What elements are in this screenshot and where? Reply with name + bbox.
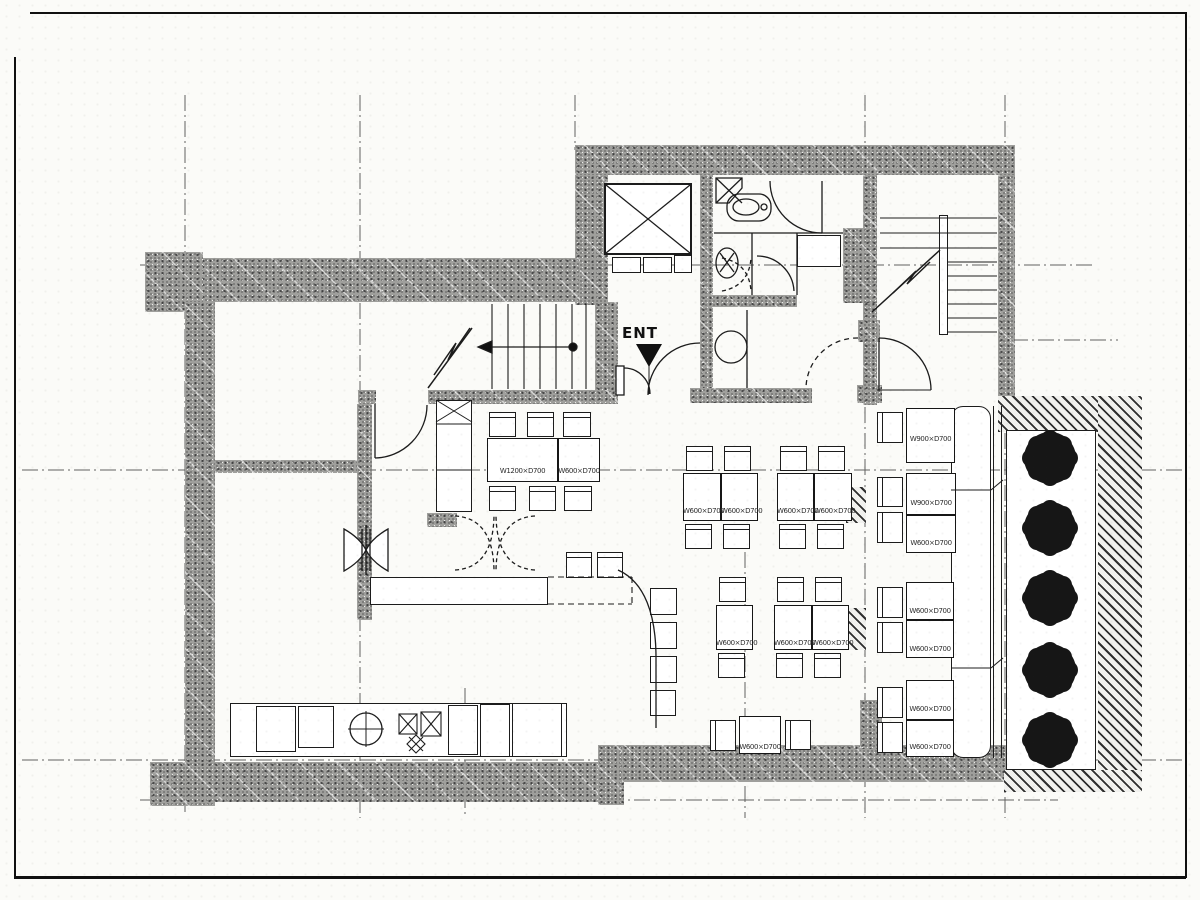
stair-stringer <box>939 215 948 335</box>
chair <box>723 524 750 549</box>
table-size-label: W600×D700 <box>683 508 721 515</box>
table-size-label: W600×D700 <box>812 640 849 647</box>
chair <box>686 446 713 471</box>
corner-sink-icon <box>716 178 742 203</box>
column-circle <box>715 331 747 363</box>
chair <box>877 622 903 653</box>
chair <box>529 486 556 511</box>
chair <box>877 477 903 507</box>
table <box>487 438 558 482</box>
table-size-label: W1200×D700 <box>487 468 558 475</box>
door-arc-left-room <box>375 404 427 458</box>
page-border-right <box>1185 12 1187 878</box>
chair <box>877 412 903 443</box>
table-size-label: W900×D700 <box>906 436 955 443</box>
wall-toilet-stair-block <box>843 228 877 303</box>
planter-wall-bottom <box>1004 770 1142 792</box>
stair-break-symbol <box>872 250 940 312</box>
table-size-label: W600×D700 <box>558 468 600 475</box>
chair <box>566 552 592 578</box>
door-arc-stair <box>877 338 931 390</box>
table <box>906 473 956 515</box>
chair <box>877 722 903 753</box>
stair-break-symbol-left <box>428 328 472 388</box>
chair <box>877 587 903 618</box>
table <box>906 680 954 720</box>
elevator-door-left <box>612 257 641 273</box>
chair <box>724 446 751 471</box>
chair <box>710 720 736 751</box>
stool <box>650 656 677 683</box>
chair <box>489 412 516 437</box>
chair <box>877 687 903 718</box>
wall-left-rooms-partition <box>215 460 360 473</box>
wall-left-outer <box>185 302 215 764</box>
service-cabinet <box>436 400 472 512</box>
table-size-label: W600×D700 <box>774 640 812 647</box>
planter-wall-right <box>1098 396 1142 792</box>
kitchen-unit-4 <box>480 704 510 757</box>
chair <box>564 486 592 511</box>
urinal-icon <box>716 248 738 278</box>
chair <box>785 720 811 750</box>
entrance-label: ENT <box>616 324 664 342</box>
table-size-label: W600×D700 <box>814 508 852 515</box>
page-border-bottom <box>14 876 1186 879</box>
elevator-door-right <box>643 257 672 273</box>
chair <box>780 446 807 471</box>
chair <box>779 524 806 549</box>
wall-right-of-stairs <box>998 175 1015 405</box>
stair-treads-left <box>492 304 586 389</box>
stool <box>650 690 676 716</box>
wall-dining-top-a <box>358 390 376 404</box>
entrance-door-arcs <box>616 343 700 395</box>
chair <box>776 653 803 678</box>
chair <box>685 524 712 549</box>
wall-kitchen-bottom <box>185 762 622 802</box>
table-size-label: W600×D700 <box>716 640 753 647</box>
door-arc-dashed-hall <box>806 338 858 388</box>
table <box>906 515 956 553</box>
wall-counter-side <box>427 513 457 527</box>
chair <box>597 552 623 578</box>
chair <box>777 577 804 602</box>
chair <box>814 653 841 678</box>
entrance-arrow-icon <box>636 344 662 367</box>
stall-door-arcs <box>722 258 751 291</box>
table-size-label: W600×D700 <box>906 646 954 653</box>
bench-backrest <box>993 406 1002 758</box>
stair-direction-arrow <box>478 341 577 353</box>
table <box>906 720 954 757</box>
kitchen-unit-5 <box>512 703 562 757</box>
table-size-label: W600×D700 <box>906 608 954 615</box>
wall-step-block <box>598 745 624 805</box>
wall-elevator-toilet-divider <box>700 175 713 398</box>
service-counter <box>370 577 548 605</box>
chair <box>563 412 591 437</box>
wall-top-block <box>575 145 1015 175</box>
table-size-label: W600×D700 <box>777 508 814 515</box>
bench-seat <box>951 406 991 758</box>
page-border-top <box>30 12 1187 14</box>
planter-box <box>1006 430 1096 770</box>
table <box>558 438 600 482</box>
chair <box>815 577 842 602</box>
chair <box>818 446 845 471</box>
page-border-left <box>14 57 16 877</box>
toilet-icon <box>727 194 771 221</box>
toilet-niche <box>797 235 841 267</box>
kitchen-unit-1 <box>256 706 296 752</box>
table-size-label: W900×D700 <box>906 500 956 507</box>
wall-entrance-right <box>690 388 812 403</box>
chair <box>817 524 844 549</box>
stool <box>650 622 677 649</box>
elevator-car <box>604 183 692 255</box>
chair <box>719 577 746 602</box>
table-size-label: W600×D700 <box>906 744 954 751</box>
stool <box>650 588 677 615</box>
swing-door-arcs <box>455 516 535 570</box>
elevator-jamb <box>674 255 692 273</box>
stall-door-arc-solid <box>757 256 794 291</box>
counter-dashed-edge <box>548 577 632 604</box>
kitchen-unit-2 <box>298 706 334 748</box>
floor-plan: W1200×D700 W600×D700 W600×D700 W600×D700… <box>0 0 1200 900</box>
chair <box>877 512 903 543</box>
wall-below-toilets <box>700 295 797 307</box>
door-arc-upper-toilet <box>770 181 822 233</box>
table-size-label: W600×D700 <box>906 540 956 547</box>
kitchen-unit-3 <box>448 705 478 755</box>
table-size-label: W600×D700 <box>721 508 758 515</box>
table-size-label: W600×D700 <box>739 744 781 751</box>
chair <box>489 486 516 511</box>
wall-upper-left-long <box>200 258 580 302</box>
table-size-label: W600×D700 <box>906 706 954 713</box>
chair <box>527 412 554 437</box>
chair <box>718 653 745 678</box>
wall-vestibule-left <box>595 302 618 398</box>
